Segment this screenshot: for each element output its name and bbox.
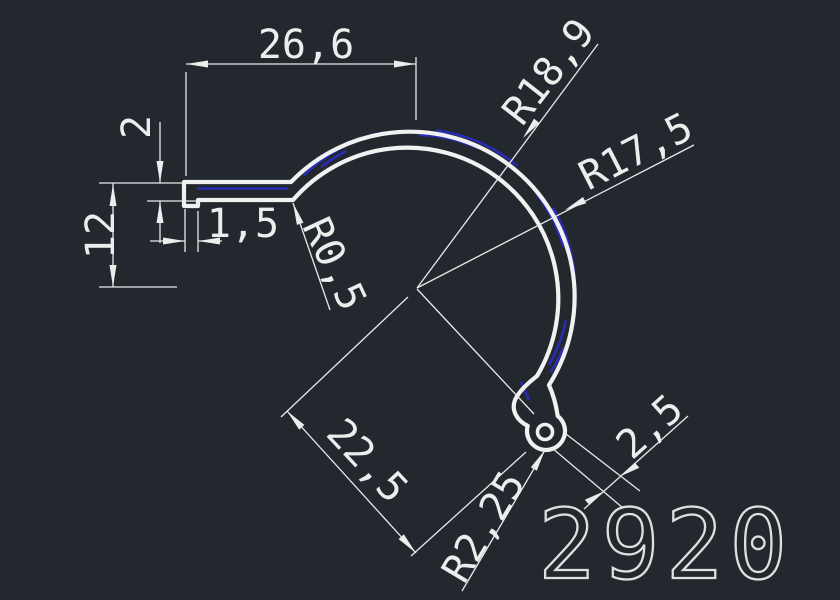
profile-geometry[interactable] (184, 129, 575, 450)
arrowhead (163, 238, 185, 245)
arrowhead (110, 265, 117, 287)
arrowhead (394, 61, 416, 68)
dim-label-height[interactable]: 12 (78, 211, 124, 259)
dim-outer-radius[interactable]: R18,9 (417, 10, 604, 288)
profile-outline[interactable] (184, 132, 575, 450)
part-number-label[interactable]: 2920 (538, 489, 793, 600)
dim-label-inner-radius[interactable]: R17,5 (572, 104, 700, 200)
cad-drawing: 26,6 2 12 1,5 R0,5 R18,9 (0, 0, 840, 600)
dim-inner-radius[interactable]: R17,5 (417, 104, 700, 288)
dim-label-thickness[interactable]: 2 (114, 115, 160, 139)
dim-label-outer-radius[interactable]: R18,9 (494, 10, 604, 133)
profile-bead-hole[interactable] (538, 425, 553, 440)
dim-label-lip[interactable]: 1,5 (207, 201, 279, 247)
arrowhead (531, 450, 545, 471)
dim-label-top-width[interactable]: 26,6 (258, 22, 354, 68)
arrowhead (186, 61, 208, 68)
arrowhead (565, 197, 586, 210)
dim-left-height[interactable]: 12 (78, 183, 177, 287)
arrowhead (157, 201, 164, 223)
dim-label-bead-gap[interactable]: 2,5 (608, 386, 692, 469)
dim-label-bead-radius[interactable]: R2,25 (433, 464, 534, 591)
dim-lip-width[interactable]: 1,5 (150, 201, 279, 252)
dim-top-width[interactable]: 26,6 (186, 22, 416, 176)
arrowhead (399, 534, 416, 553)
arrowhead (293, 203, 304, 225)
dim-fillet-radius[interactable]: R0,5 (293, 203, 375, 317)
arrowhead (110, 184, 117, 206)
center-reference-line[interactable] (417, 289, 534, 414)
dim-label-fillet[interactable]: R0,5 (293, 211, 375, 318)
arrowhead (157, 161, 164, 183)
cad-drawing-canvas: 26,6 2 12 1,5 R0,5 R18,9 (0, 0, 840, 600)
arrowhead (287, 411, 304, 430)
